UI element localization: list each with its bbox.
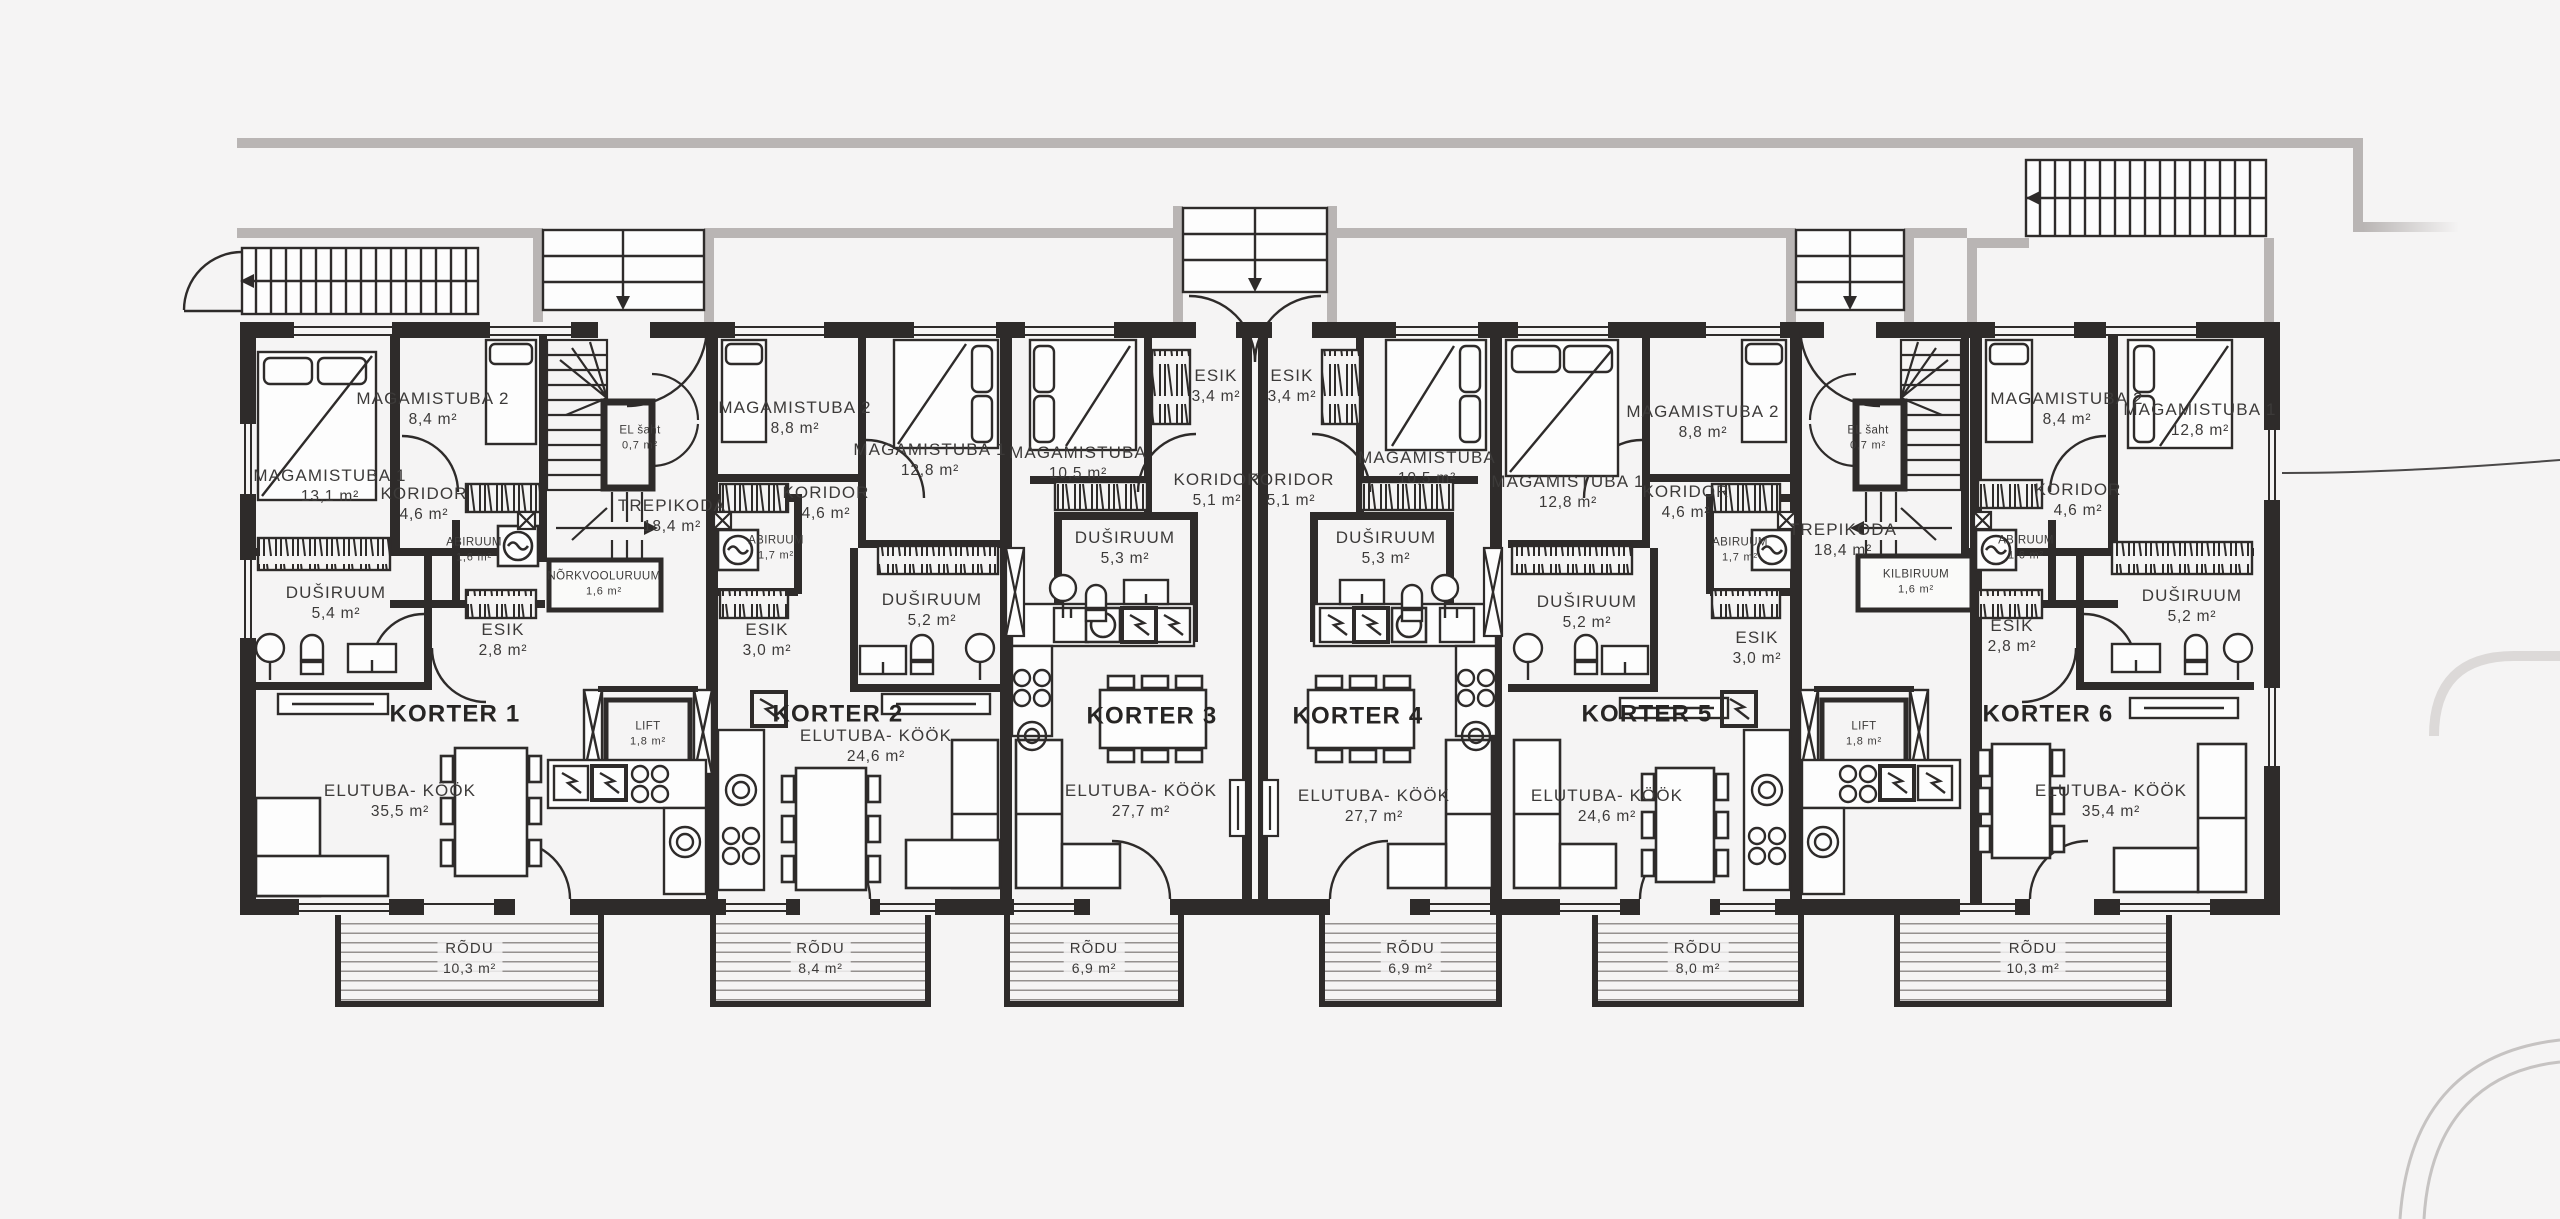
room-label-elutuba-k6: ELUTUBA- KÖÖK35,4 m²: [2035, 780, 2187, 822]
balcony-korter-1: RÕDU10,3 m²: [335, 915, 604, 1007]
interior-walls: [254, 336, 2254, 692]
room-label-elutuba-k3: ELUTUBA- KÖÖK27,7 m²: [1065, 780, 1217, 822]
balcony-label: RÕDU6,9 m²: [1380, 938, 1441, 978]
balcony-label: RÕDU8,0 m²: [1668, 938, 1729, 978]
room-label-lift-right: LIFT1,8 m²: [1846, 719, 1882, 748]
room-label-esik-k5: ESIK3,0 m²: [1733, 627, 1782, 669]
room-label-koridor-k5: KORIDOR4,6 m²: [1642, 481, 1729, 523]
room-label-magamistuba1-k6: MAGAMISTUBA 112,8 m²: [2123, 399, 2276, 441]
room-label-magamistuba2-k2: MAGAMISTUBA 28,8 m²: [718, 397, 871, 439]
room-label-koridor-k1: KORIDOR4,6 m²: [380, 483, 467, 525]
balcony-label: RÕDU10,3 m²: [2000, 938, 2065, 978]
room-label-magamistuba2-k1: MAGAMISTUBA 28,4 m²: [356, 388, 509, 430]
room-label-esik-k1: ESIK2,8 m²: [479, 619, 528, 661]
room-label-elutuba-k2: ELUTUBA- KÖÖK24,6 m²: [800, 725, 952, 767]
room-label-dusiruum-k6: DUŠIRUUM5,2 m²: [2142, 585, 2242, 627]
exterior-stair-right: [2026, 160, 2266, 236]
balcony-label: RÕDU10,3 m²: [437, 938, 502, 978]
room-label-esik-k2: ESIK3,0 m²: [743, 619, 792, 661]
room-label-kilbiruum: KILBIRUUM1,6 m²: [1883, 567, 1949, 596]
room-label-magamistuba1-k5: MAGAMISTUBA 112,8 m²: [1491, 471, 1644, 513]
room-label-trepikoda-left: TREPIKODA18,4 m²: [618, 495, 726, 537]
exterior-stair-left: [184, 248, 478, 314]
room-label-koridor-k4: KORIDOR5,1 m²: [1247, 469, 1334, 511]
site-roads: [2282, 460, 2560, 1219]
room-label-el-saht-right: EL šaht0,7 m²: [1847, 423, 1888, 452]
room-label-magamistuba1-k2: MAGAMISTUBA 112,8 m²: [853, 439, 1006, 481]
unit-title-korter-3: KORTER 3: [1087, 700, 1218, 731]
room-label-esik-k3: ESIK3,4 m²: [1192, 365, 1241, 407]
room-label-trepikoda-right: TREPIKODA18,4 m²: [1789, 519, 1897, 561]
entry-steps-left-core: [543, 230, 704, 310]
room-label-abiruum-k2: ABIRUUM1,7 m²: [748, 533, 804, 562]
room-label-dusiruum-k2: DUŠIRUUM5,2 m²: [882, 589, 982, 631]
room-label-dusiruum-k3: DUŠIRUUM5,3 m²: [1075, 527, 1175, 569]
unit-title-korter-1: KORTER 1: [390, 698, 521, 729]
unit-title-korter-5: KORTER 5: [1582, 698, 1713, 729]
room-label-el-saht-left: EL šaht0,7 m²: [619, 423, 660, 452]
balcony-label: RÕDU6,9 m²: [1064, 938, 1125, 978]
room-label-elutuba-k1: ELUTUBA- KÖÖK35,5 m²: [324, 780, 476, 822]
balcony-korter-5: RÕDU8,0 m²: [1592, 915, 1804, 1007]
room-label-magamistuba-k4: MAGAMISTUBA10,5 m²: [1358, 447, 1496, 489]
room-label-dusiruum-k4: DUŠIRUUM5,3 m²: [1336, 527, 1436, 569]
room-label-abiruum-k6: ABIRUUM1,6 m²: [1998, 533, 2054, 562]
room-label-dusiruum-k5: DUŠIRUUM5,2 m²: [1537, 591, 1637, 633]
entry-steps-right-core: [1796, 230, 1904, 310]
entry-steps-center: [1183, 208, 1327, 362]
balcony-korter-2: RÕDU8,4 m²: [710, 915, 931, 1007]
room-label-lift-left: LIFT1,8 m²: [630, 719, 666, 748]
room-label-abiruum-k5: ABIRUUM1,7 m²: [1712, 535, 1768, 564]
unit-title-korter-6: KORTER 6: [1983, 698, 2114, 729]
room-label-elutuba-k4: ELUTUBA- KÖÖK27,7 m²: [1298, 785, 1450, 827]
floor-plan-canvas: RÕDU10,3 m² RÕDU8,4 m² RÕDU6,9 m² RÕDU6,…: [0, 0, 2560, 1219]
room-label-magamistuba-k3: MAGAMISTUBA10,5 m²: [1009, 442, 1147, 484]
balcony-korter-4: RÕDU6,9 m²: [1319, 915, 1502, 1007]
unit-title-korter-4: KORTER 4: [1293, 700, 1424, 731]
room-label-magamistuba2-k6: MAGAMISTUBA 28,4 m²: [1990, 388, 2143, 430]
balcony-korter-3: RÕDU6,9 m²: [1004, 915, 1184, 1007]
room-label-dusiruum-k1: DUŠIRUUM5,4 m²: [286, 582, 386, 624]
room-label-koridor-k6: KORIDOR4,6 m²: [2034, 479, 2121, 521]
room-label-koridor-k2: KORIDOR4,6 m²: [782, 482, 869, 524]
room-label-elutuba-k5: ELUTUBA- KÖÖK24,6 m²: [1531, 785, 1683, 827]
room-label-abiruum-k1: ABIRUUM1,6 m²: [446, 535, 502, 564]
room-label-esik-k4: ESIK3,4 m²: [1268, 365, 1317, 407]
balcony-korter-6: RÕDU10,3 m²: [1894, 915, 2172, 1007]
room-label-magamistuba2-k5: MAGAMISTUBA 28,8 m²: [1626, 401, 1779, 443]
room-label-esik-k6: ESIK2,8 m²: [1988, 615, 2037, 657]
balcony-label: RÕDU8,4 m²: [790, 938, 851, 978]
room-label-norkvooluruum: NÕRKVOOLURUUM1,6 m²: [547, 569, 660, 598]
